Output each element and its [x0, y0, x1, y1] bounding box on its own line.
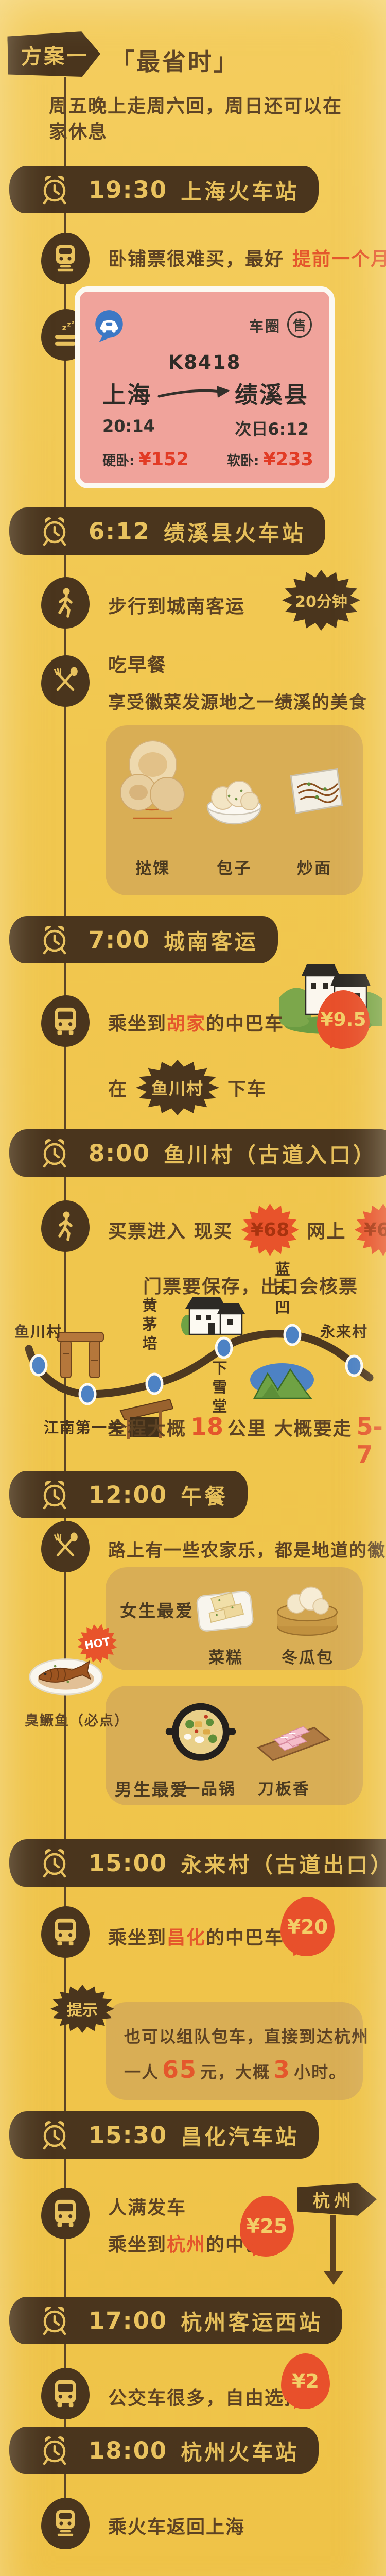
- tip-hours: 3: [273, 2056, 291, 2083]
- entry-ticket-note: 买票进入 现买 ¥68 网上 ¥60: [108, 1204, 386, 1256]
- food-image-yipinguo: [165, 1692, 237, 1769]
- dropoff-village-badge: 鱼川村: [136, 1060, 219, 1115]
- hard-sleeper-fare: 硬卧: ¥152: [102, 449, 189, 470]
- boys-favorite-label: 男生最爱: [115, 1776, 189, 1801]
- train-node: [41, 233, 90, 284]
- train-icon: [52, 244, 78, 274]
- food-image-daobanxiang: [251, 1709, 336, 1768]
- price-value: ¥9.5: [321, 1009, 366, 1030]
- bus-node: [41, 995, 90, 1047]
- onsite-price: ¥68: [251, 1219, 289, 1241]
- food-label-baozi: 包子: [217, 855, 252, 878]
- ticket-operator: 车圈: [249, 315, 281, 336]
- stop-place: 杭州客运西站: [181, 2305, 323, 2336]
- sleeper-note-text: 卧铺票很难买，最好: [108, 244, 284, 271]
- time-banner-1800: 18:00 杭州火车站: [9, 2427, 319, 2474]
- online-price: ¥60: [364, 1219, 386, 1241]
- time-banner-1530: 15:30 昌化汽车站: [9, 2111, 319, 2159]
- sleeper-note: 卧铺票很难买，最好 提前一个月订: [108, 244, 386, 271]
- stop-time: 6:12: [89, 518, 150, 545]
- dropoff-note: 在 鱼川村 下车: [108, 1059, 267, 1116]
- alarm-clock-icon: [38, 173, 71, 206]
- bus-icon: [52, 2198, 79, 2228]
- plan-ribbon: 方案一: [7, 31, 101, 78]
- bus-note-prefix: 乘坐到: [108, 2230, 167, 2257]
- soft-sleeper-label: 软卧:: [227, 450, 259, 469]
- soft-sleeper-price: ¥233: [263, 449, 313, 470]
- food-label-daobanxiang: 刀板香: [258, 1776, 310, 1799]
- tip-part: 小时。: [294, 2059, 346, 2083]
- stop-time: 18:00: [89, 2437, 167, 2464]
- time-banner-1500: 15:00 永来村（古道出口）: [9, 1839, 386, 1887]
- online-label: 网上: [307, 1216, 346, 1243]
- dropoff-village: 鱼川村: [151, 1076, 204, 1099]
- return-train-note: 乘火车返回上海: [108, 2512, 245, 2539]
- dropoff-prefix: 在: [108, 1074, 128, 1101]
- ticket-stamp: 售: [287, 311, 312, 338]
- bus-note-suffix: 的中巴车: [206, 1923, 284, 1950]
- food-image-fried-noodles: [275, 741, 353, 836]
- soft-sleeper-fare: 软卧: ¥233: [227, 449, 313, 470]
- svg-text:z: z: [72, 320, 74, 325]
- food-image-taguo: [116, 732, 188, 842]
- food-image-stinky-fish: [27, 1647, 105, 1705]
- signpost-label: 杭州: [313, 2187, 355, 2212]
- ticket-depart-time: 20:14: [102, 416, 155, 436]
- walk-node-2: [41, 1200, 90, 1252]
- price-badge-hangzhou-bus: ¥25: [240, 2196, 294, 2257]
- lunch-node: [41, 1521, 90, 1572]
- fork-spoon-icon: [51, 667, 80, 696]
- food-image-caigao: [192, 1571, 259, 1641]
- bus-note-destination: 胡家: [167, 1009, 206, 1036]
- food-label-caigao: 菜糕: [208, 1645, 243, 1668]
- alarm-clock-icon: [38, 2434, 71, 2467]
- time-banner-1930: 19:30 上海火车站: [9, 166, 319, 213]
- trail-path: [29, 1334, 370, 1394]
- entry-ticket-text: 买票进入 现买: [108, 1216, 233, 1243]
- ticket-from: 上海: [102, 376, 152, 410]
- signpost-plank: 杭州: [297, 2182, 377, 2216]
- breakfast-title: 吃早餐: [108, 650, 167, 677]
- lunch-desc: 路上有一些农家乐，都是地道的徽菜: [108, 1536, 386, 1562]
- map-station-huangmaopei: 黄茅培: [138, 1297, 160, 1354]
- stop-time: 19:30: [89, 176, 167, 204]
- stop-place: 城南客运: [164, 924, 258, 955]
- girls-favorite-label: 女生最爱: [120, 1597, 194, 1622]
- alarm-clock-icon: [38, 923, 71, 956]
- stop-time: 15:30: [89, 2122, 167, 2149]
- onsite-price-badge: ¥68: [241, 1204, 299, 1256]
- alarm-clock-icon: [38, 1478, 71, 1511]
- price-value: ¥25: [247, 2215, 287, 2238]
- map-station-jiangnan-pass: 江南第一关: [44, 1416, 124, 1437]
- stop-time: 17:00: [89, 2307, 167, 2334]
- alarm-clock-icon: [38, 1137, 71, 1170]
- hangzhou-signpost: 杭州: [297, 2182, 381, 2297]
- food-label-yipinguo: 一品锅: [184, 1776, 236, 1799]
- tip-part: 一人: [124, 2059, 159, 2083]
- stop-time: 12:00: [89, 1481, 167, 1509]
- stinky-fish-label: 臭鳜鱼（必点）: [25, 1709, 129, 1730]
- stop-place: 午餐: [181, 1479, 228, 1510]
- signpost-post: [330, 2215, 336, 2273]
- map-station-yuchuan: 鱼川村: [14, 1320, 62, 1342]
- tip-line2: 一人 65 元，大概 3 小时。: [124, 2056, 346, 2083]
- stop-time: 15:00: [89, 1850, 167, 1877]
- sleeper-note-highlight: 提前一个月订: [292, 244, 386, 271]
- duration-hours: 5-7: [357, 1413, 383, 1468]
- food-label-taguo: 挞馃: [135, 855, 170, 878]
- bus-note-prefix: 乘坐到: [108, 1923, 167, 1950]
- bus-icon: [52, 1917, 79, 1947]
- svg-text:z: z: [67, 321, 71, 328]
- stop-place: 永来村（古道出口）: [181, 1848, 386, 1878]
- train-number: K8418: [168, 351, 241, 374]
- bus-node-4: [41, 2368, 90, 2419]
- bus-node-2: [41, 1906, 90, 1958]
- stop-place: 绩溪县火车站: [164, 516, 306, 547]
- time-banner-0800: 8:00 鱼川村（古道入口）: [9, 1129, 386, 1177]
- stop-place: 上海火车站: [181, 174, 299, 205]
- girls-favorite-card: 女生最爱 菜糕 冬瓜包: [106, 1567, 363, 1670]
- stop-place: 昌化汽车站: [181, 2120, 299, 2150]
- alarm-clock-icon: [38, 1846, 71, 1879]
- keep-ticket-note: 门票要保存，出口会核票: [143, 1272, 358, 1298]
- distance-part: 公里 大概要走: [227, 1414, 353, 1440]
- svg-text:z: z: [62, 324, 66, 332]
- time-banner-1700: 17:00 杭州客运西站: [9, 2297, 342, 2344]
- bus-note-suffix: 的中巴车: [206, 1009, 284, 1036]
- alarm-clock-icon: [38, 515, 71, 548]
- meal-node: [41, 655, 90, 707]
- map-station-yonglai: 永来村: [320, 1320, 368, 1342]
- alarm-clock-icon: [38, 2304, 71, 2337]
- walk-duration: 20分钟: [295, 589, 347, 612]
- price-value: ¥20: [287, 1916, 328, 1938]
- tip-price: 65: [162, 2056, 197, 2083]
- walk-node: [41, 577, 90, 629]
- price-badge-city-bus: ¥2: [281, 2353, 330, 2409]
- itinerary-poster: 方案一 「最省时」 周五晚上走周六回，周日还可以在家休息 19:30 上海火车站…: [0, 0, 386, 2576]
- tip-box: 也可以组队包车，直接到达杭州 一人 65 元，大概 3 小时。: [106, 2002, 363, 2100]
- food-label-dongguabao: 冬瓜包: [282, 1645, 334, 1668]
- time-banner-0612: 6:12 绩溪县火车站: [9, 507, 325, 555]
- page-title: 「最省时」: [111, 43, 239, 77]
- train-ticket-card: 车圈 售 K8418 上海 绩溪县 20:14 次日6:12 硬卧: ¥152 …: [75, 286, 335, 488]
- train-icon: [52, 2509, 78, 2538]
- bus-note-hujia: 乘坐到 胡家 的中巴车: [108, 1009, 284, 1036]
- train-node-2: [41, 2498, 90, 2549]
- stop-place: 杭州火车站: [181, 2435, 299, 2466]
- walking-person-icon: [53, 587, 78, 618]
- bus-note-changhua: 乘坐到 昌化 的中巴车: [108, 1923, 284, 1950]
- trail-distance-note: 全程大概 18 公里 大概要走 5-7 小时: [108, 1413, 386, 1468]
- breakfast-food-card: 挞馃 包子 炒面: [106, 725, 363, 895]
- stop-time: 8:00: [89, 1140, 150, 1167]
- walk-duration-badge: 20分钟: [282, 570, 360, 631]
- xiaxuetang-house-illustration: [181, 1297, 245, 1335]
- alarm-clock-icon: [38, 2119, 71, 2151]
- hard-sleeper-price: ¥152: [138, 449, 188, 470]
- city-bus-note: 公交车很多，自由选择: [108, 2383, 304, 2410]
- walking-person-icon: [53, 1211, 78, 1242]
- car-app-logo-icon: [92, 308, 126, 344]
- lantianao-mountains-illustration: [250, 1363, 314, 1398]
- stop-place: 鱼川村（古道入口）: [164, 1138, 377, 1168]
- tip-badge: 提示: [50, 1985, 114, 2033]
- ticket-arrive-time: 次日6:12: [235, 416, 309, 440]
- bus-note-destination: 昌化: [167, 1923, 206, 1950]
- food-label-noodles: 炒面: [297, 855, 332, 878]
- arrow-right-icon: [156, 382, 233, 401]
- stop-time: 7:00: [89, 926, 150, 954]
- walk-note: 步行到城南客运: [108, 591, 245, 618]
- bus-icon: [52, 1006, 79, 1036]
- map-station-lantianao: 蓝天凹: [271, 1261, 292, 1318]
- fork-spoon-icon: [51, 1532, 80, 1561]
- bus-note-prefix: 乘坐到: [108, 1009, 167, 1036]
- hard-sleeper-label: 硬卧:: [102, 450, 134, 469]
- tip-badge-label: 提示: [67, 1997, 98, 2020]
- online-price-badge: ¥60: [355, 1204, 386, 1256]
- price-value: ¥2: [292, 2370, 319, 2393]
- bus-icon: [52, 2379, 79, 2409]
- ticket-to: 绩溪县: [235, 376, 309, 410]
- tip-part: 元，大概: [200, 2059, 270, 2083]
- tip-line1: 也可以组队包车，直接到达杭州: [124, 2024, 369, 2047]
- signpost-arrowhead-icon: [324, 2271, 343, 2295]
- stone-arch-illustration: [57, 1332, 103, 1378]
- boys-favorite-card: 男生最爱 一品锅 刀板香: [106, 1686, 363, 1805]
- map-station-xiaxuetang: 下雪堂: [208, 1360, 230, 1417]
- price-badge-hujia-bus: ¥9.5: [317, 990, 370, 1049]
- food-image-baozi: [197, 749, 271, 831]
- time-banner-0700: 7:00 城南客运: [9, 916, 278, 963]
- breakfast-desc: 享受徽菜发源地之一绩溪的美食: [108, 688, 367, 714]
- price-badge-changhua-bus: ¥20: [280, 1897, 335, 1956]
- plan-intro: 周五晚上走周六回，周日还可以在家休息: [49, 94, 358, 146]
- bus-node-3: [41, 2188, 90, 2239]
- bus-note-destination: 杭州: [167, 2230, 206, 2257]
- time-banner-1200: 12:00 午餐: [9, 1471, 248, 1518]
- plan-ribbon-label: 方案一: [21, 39, 90, 70]
- dropoff-suffix: 下车: [227, 1074, 267, 1101]
- depart-when-full-note: 人满发车: [108, 2193, 186, 2219]
- food-image-dongguabao: [271, 1570, 343, 1642]
